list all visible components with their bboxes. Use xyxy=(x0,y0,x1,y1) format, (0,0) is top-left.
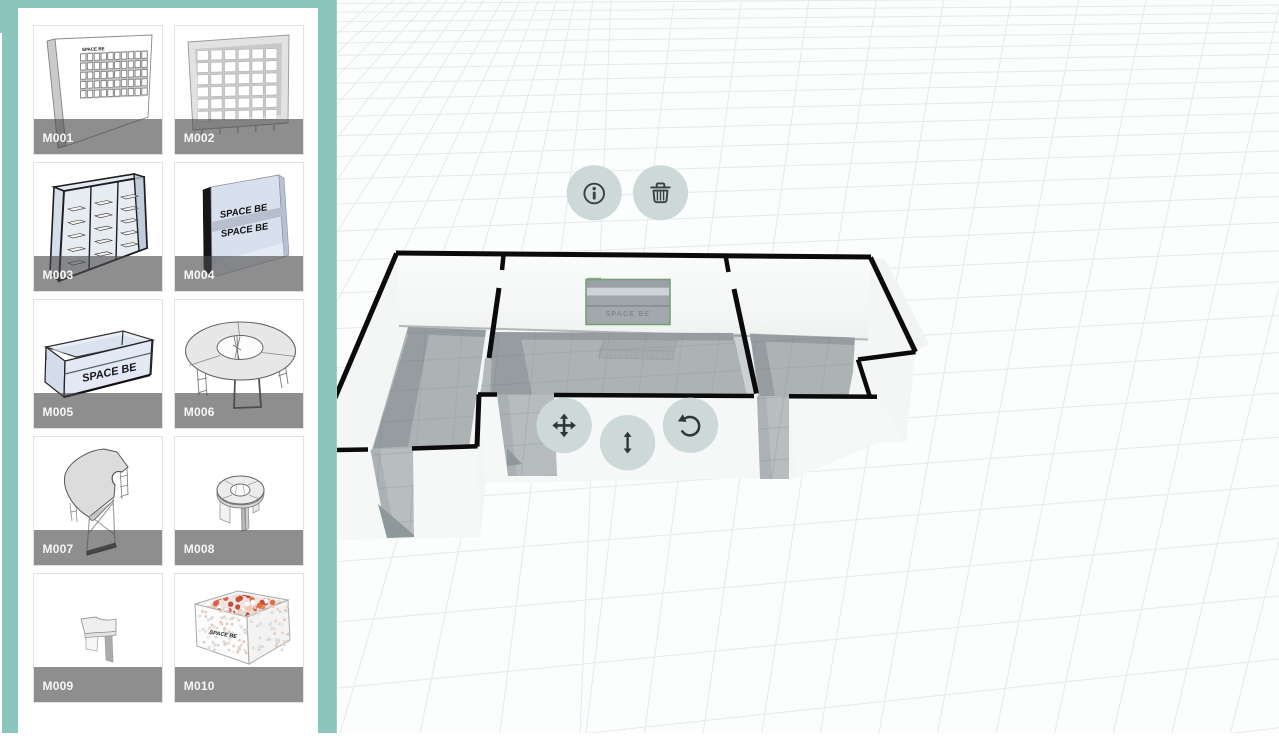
svg-text:SPACE BE: SPACE BE xyxy=(606,311,651,318)
svg-text:SPACE BE: SPACE BE xyxy=(81,46,104,52)
